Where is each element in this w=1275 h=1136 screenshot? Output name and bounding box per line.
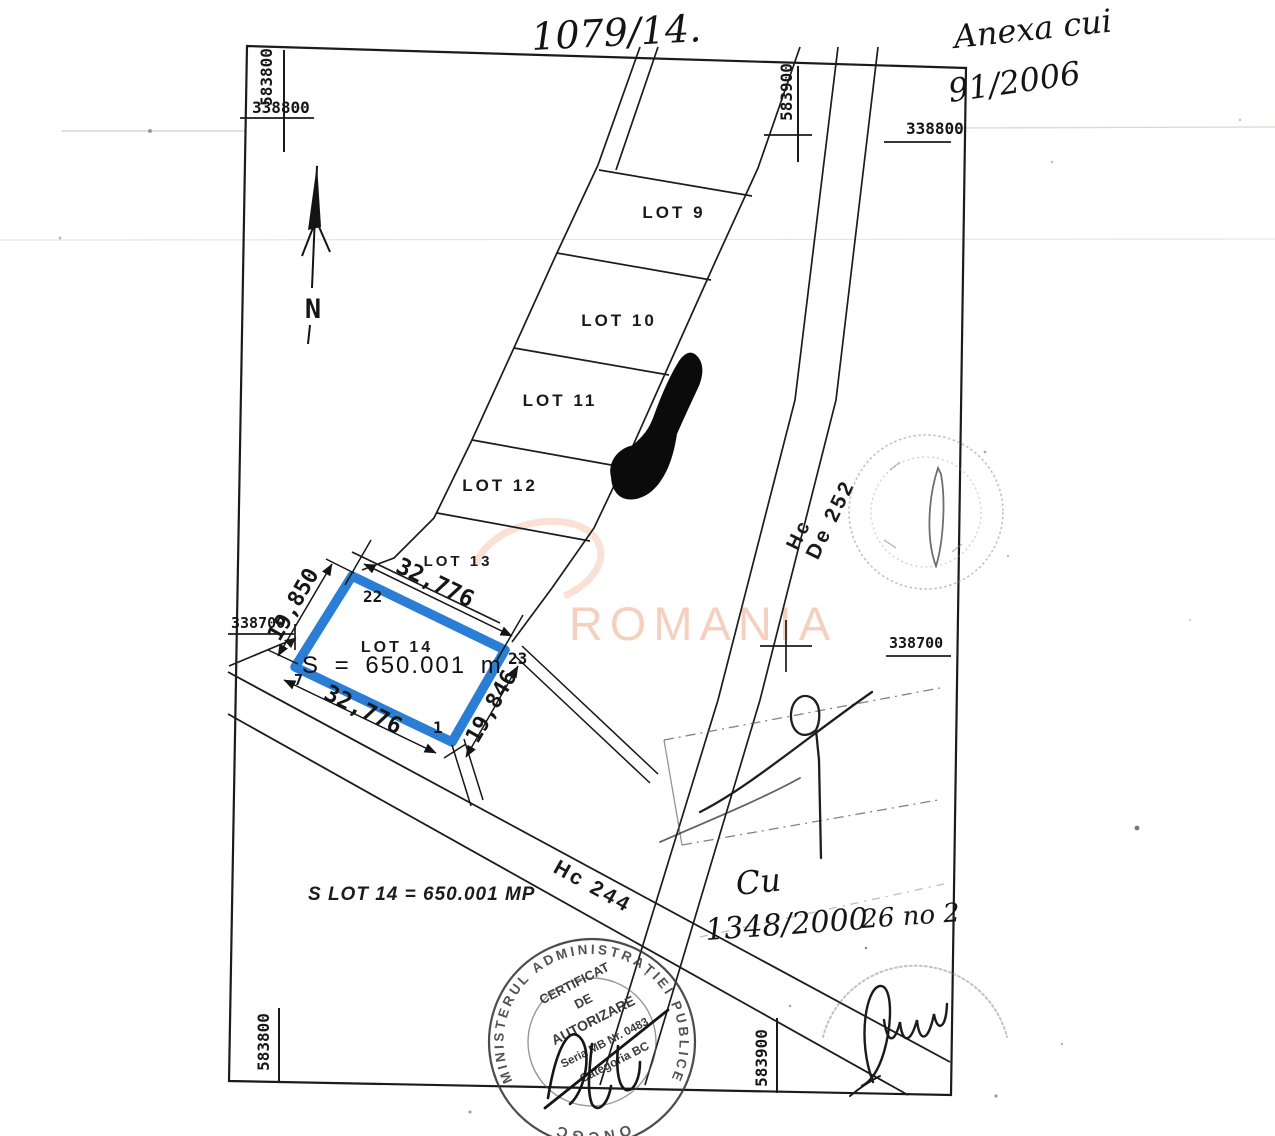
north-label: N bbox=[305, 294, 321, 325]
grid-mark-top-left: 583800 338800 bbox=[240, 48, 314, 152]
lot-label-11: LOT 11 bbox=[523, 391, 598, 410]
grid-label-338800-tl: 338800 bbox=[252, 98, 310, 117]
lot14-vertex-1: 1 bbox=[433, 718, 443, 737]
grid-label-338700-mr: 338700 bbox=[889, 634, 943, 652]
stamp-signature-right bbox=[823, 966, 1007, 1096]
ink-blob bbox=[604, 353, 703, 503]
lot14-vertex-23: 23 bbox=[508, 649, 527, 668]
divider-lot9-lot10 bbox=[557, 253, 711, 280]
stamp-ring-bottom-text: ONCGC bbox=[551, 1121, 634, 1136]
signature-bottom-right bbox=[850, 986, 947, 1096]
signature-flourish bbox=[660, 692, 872, 858]
lots-left-boundary-2 bbox=[616, 47, 658, 170]
lot14-dim-bottom: 32,776 bbox=[320, 680, 406, 740]
stamp-faint-round bbox=[849, 435, 1003, 589]
cadastral-plan-svg: ROMANIA 583800 338800 583900 338800 3387… bbox=[0, 0, 1275, 1136]
area-summary-note: S LOT 14 = 650.001 MP bbox=[308, 884, 535, 905]
grid-mark-top-right: 583900 338800 bbox=[764, 63, 964, 162]
handwriting-cu: Cu bbox=[734, 860, 783, 903]
handwriting-case-number: 1079/14. bbox=[530, 6, 702, 59]
divider-lot10-lot11 bbox=[514, 348, 669, 375]
grid-mark-bottom-mid: 583900 bbox=[752, 1018, 777, 1093]
handwriting-annex-line2: 91/2006 bbox=[946, 54, 1083, 110]
road-label-de252: De 252 bbox=[802, 476, 860, 563]
grid-mark-bottom-left: 583800 bbox=[254, 1008, 279, 1081]
north-arrow: N bbox=[302, 164, 330, 344]
handwriting-doc-suffix: 26 no 2 bbox=[859, 898, 960, 935]
grid-label-583800-bl: 583800 bbox=[254, 1013, 273, 1071]
stamp-signature-mark bbox=[929, 468, 943, 566]
divider-lot11-lot12 bbox=[472, 440, 628, 468]
scanned-cadastral-plan: ROMANIA 583800 338800 583900 338800 3387… bbox=[0, 0, 1275, 1136]
grid-label-583900-tr: 583900 bbox=[777, 63, 796, 121]
lot14-vertex-22: 22 bbox=[363, 587, 382, 606]
grid-label-338800-tr: 338800 bbox=[906, 119, 964, 138]
watermark-text: ROMANIA bbox=[569, 597, 837, 650]
dashed-parcel bbox=[664, 688, 944, 937]
lots-strip bbox=[352, 47, 800, 642]
grid-label-583900-bm: 583900 bbox=[752, 1029, 771, 1087]
divider-lot9-top bbox=[599, 170, 752, 196]
lot-label-9: LOT 9 bbox=[642, 203, 705, 222]
stamp-cert-line2: DE bbox=[572, 990, 595, 1012]
handwriting-annex-line1: Anexa cui bbox=[949, 2, 1114, 57]
lot14-area-text: S = 650.001 m bbox=[302, 652, 503, 679]
lot-label-10: LOT 10 bbox=[581, 311, 657, 330]
road-label-hc244: Hc 244 bbox=[550, 856, 636, 918]
divider-lot12-lot13 bbox=[437, 513, 590, 541]
handwriting-doc-number: 1348/2000 bbox=[704, 902, 869, 948]
stamp-ministry: MINISTERUL ADMINISTRAȚIEI PUBLICE ONCGC … bbox=[489, 939, 695, 1136]
lot-label-12: LOT 12 bbox=[462, 476, 538, 495]
lots-right-boundary bbox=[512, 47, 800, 642]
